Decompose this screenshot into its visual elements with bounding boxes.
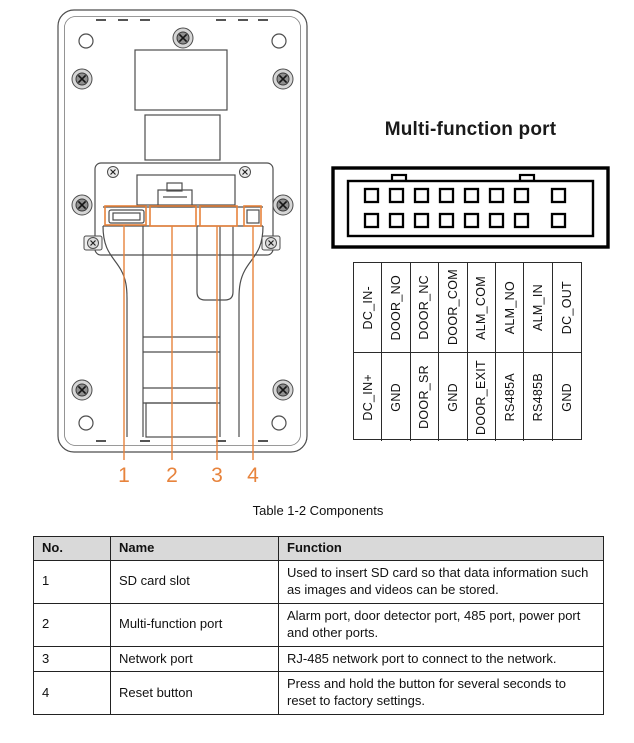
terminal-band-lines xyxy=(143,337,220,403)
port-pin xyxy=(390,189,403,202)
port-pin xyxy=(390,214,403,227)
network-port-housing xyxy=(197,226,233,300)
bracket-screw-icon xyxy=(262,236,280,250)
pin-cell: DC_IN+ xyxy=(354,353,382,441)
cell-name: Multi-function port xyxy=(111,603,279,646)
table-caption: Table 1-2 Components xyxy=(33,503,603,518)
pin-label: DC_OUT xyxy=(560,281,574,334)
cell-function: Press and hold the button for several se… xyxy=(279,672,604,715)
screw-icon xyxy=(72,69,92,89)
port-pin xyxy=(490,214,503,227)
cell-name: SD card slot xyxy=(111,561,279,604)
port-pin xyxy=(365,189,378,202)
port-pin xyxy=(515,214,528,227)
pin-label: DOOR_NO xyxy=(389,275,403,340)
port-pin xyxy=(465,214,478,227)
pin-cell: RS485A xyxy=(496,353,524,441)
pin-cell: ALM_COM xyxy=(468,263,496,353)
pin-label: DOOR_SR xyxy=(417,365,431,429)
pin-label: GND xyxy=(446,383,460,412)
port-pin xyxy=(365,214,378,227)
port-pin xyxy=(515,189,528,202)
pin-label: DOOR_COM xyxy=(446,269,460,345)
screw-icon xyxy=(72,380,92,400)
cell-name: Reset button xyxy=(111,672,279,715)
pin-label: DOOR_NC xyxy=(417,275,431,340)
header-function: Function xyxy=(279,537,604,561)
pin-label: ALM_IN xyxy=(531,284,545,331)
pin-label: DOOR_EXIT xyxy=(474,360,488,435)
multi-function-port-title: Multi-function port xyxy=(333,119,608,141)
cell-function: Alarm port, door detector port, 485 port… xyxy=(279,603,604,646)
cell-no: 4 xyxy=(34,672,111,715)
cell-function: Used to insert SD card so that data info… xyxy=(279,561,604,604)
pin-label: ALM_NO xyxy=(503,281,517,334)
pin-cell: ALM_IN xyxy=(524,263,552,353)
pin-cell: GND xyxy=(553,353,581,441)
vent-dashes xyxy=(96,20,268,441)
table-row: 3 Network port RJ-485 network port to co… xyxy=(34,646,604,672)
pin-label: GND xyxy=(389,383,403,412)
cell-no: 1 xyxy=(34,561,111,604)
header-name: Name xyxy=(111,537,279,561)
pin-cell: DOOR_SR xyxy=(411,353,439,441)
table-header-row: No. Name Function xyxy=(34,537,604,561)
port-pin xyxy=(440,189,453,202)
pin-cell: ALM_NO xyxy=(496,263,524,353)
header-no: No. xyxy=(34,537,111,561)
port-pin xyxy=(552,214,565,227)
cable-channel-right xyxy=(239,226,263,437)
pin-label: GND xyxy=(560,383,574,412)
table-row: 1 SD card slot Used to insert SD card so… xyxy=(34,561,604,604)
screw-icon xyxy=(173,28,193,48)
cell-no: 2 xyxy=(34,603,111,646)
pin-cell: DOOR_NO xyxy=(382,263,410,353)
screw-icon xyxy=(273,195,293,215)
screw-icon xyxy=(72,195,92,215)
table-row: 2 Multi-function port Alarm port, door d… xyxy=(34,603,604,646)
pin-cell: DC_IN- xyxy=(354,263,382,353)
table-row: 4 Reset button Press and hold the button… xyxy=(34,672,604,715)
pin-cell: DC_OUT xyxy=(553,263,581,353)
port-pin xyxy=(415,214,428,227)
sd-card-slot-drawing xyxy=(109,210,144,223)
manual-page: Multi-function port DC_IN- DOOR_NO DOOR_… xyxy=(0,0,634,743)
camera-window xyxy=(135,50,227,110)
pin-label: ALM_COM xyxy=(474,276,488,340)
components-table: No. Name Function 1 SD card slot Used to… xyxy=(33,536,604,715)
highlight-box-3 xyxy=(200,206,237,226)
pin-name-table: DC_IN- DOOR_NO DOOR_NC DOOR_COM ALM_COM … xyxy=(353,262,582,440)
pin-cell: GND xyxy=(382,353,410,441)
terminal-band-sides xyxy=(143,226,220,437)
port-pin xyxy=(465,189,478,202)
port-pin xyxy=(415,189,428,202)
callout-number-1: 1 xyxy=(118,464,130,488)
pin-label: RS485B xyxy=(531,373,545,421)
bracket-screw-icon xyxy=(84,236,102,250)
port-pin xyxy=(490,189,503,202)
label-window xyxy=(145,115,220,160)
corner-holes xyxy=(79,34,286,430)
cell-function: RJ-485 network port to connect to the ne… xyxy=(279,646,604,672)
multi-function-port-diagram xyxy=(333,168,608,247)
screw-icon xyxy=(273,69,293,89)
reset-button-drawing xyxy=(247,210,259,223)
callout-number-4: 4 xyxy=(247,464,259,488)
pin-cell: DOOR_NC xyxy=(411,263,439,353)
screw-icon xyxy=(273,380,293,400)
pin-label: RS485A xyxy=(503,373,517,421)
plate-screw-icon xyxy=(108,167,119,178)
cell-name: Network port xyxy=(111,646,279,672)
pin-cell: GND xyxy=(439,353,467,441)
pin-cell: RS485B xyxy=(524,353,552,441)
cell-no: 3 xyxy=(34,646,111,672)
highlight-box-2 xyxy=(150,206,196,226)
callout-number-3: 3 xyxy=(211,464,223,488)
port-pin xyxy=(440,214,453,227)
device-back-diagram xyxy=(58,10,307,452)
pin-label: DC_IN+ xyxy=(361,374,375,421)
callout-number-2: 2 xyxy=(166,464,178,488)
terminal-bottom-block xyxy=(146,403,217,437)
plate-screw-icon xyxy=(240,167,251,178)
pin-label: DC_IN- xyxy=(361,286,375,329)
port-pin xyxy=(552,189,565,202)
pin-cell: DOOR_EXIT xyxy=(468,353,496,441)
device-inner-frame xyxy=(65,17,301,446)
pin-cell: DOOR_COM xyxy=(439,263,467,353)
multi-function-connector-drawing xyxy=(158,183,192,207)
